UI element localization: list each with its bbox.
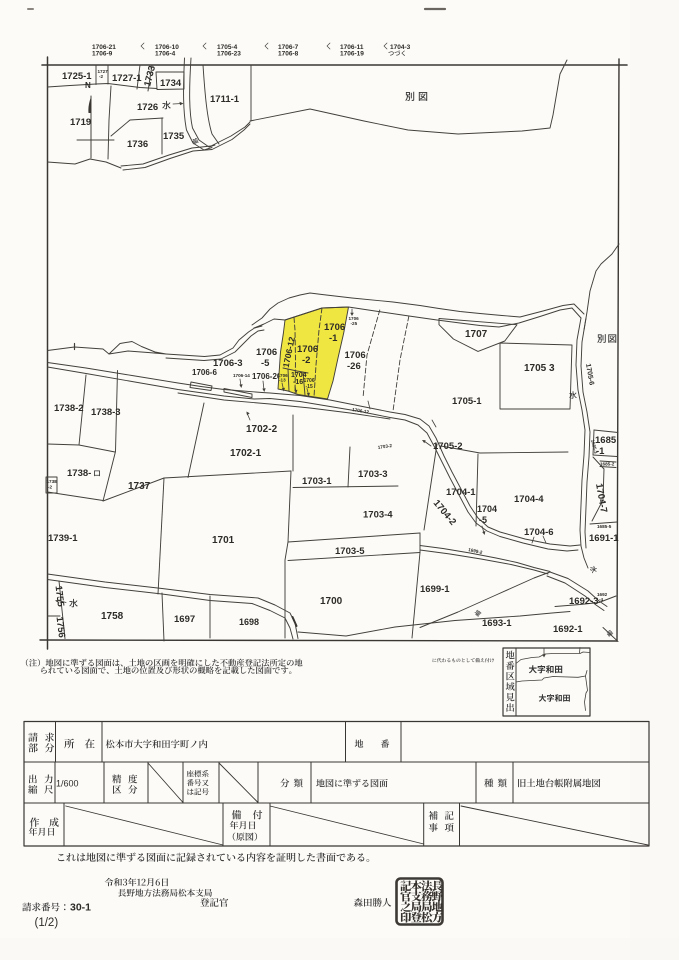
svg-text:1706-6: 1706-6 [192, 368, 217, 377]
svg-text:1726: 1726 [137, 102, 158, 113]
svg-text:1685-2: 1685-2 [600, 462, 615, 467]
svg-text:-5: -5 [261, 358, 270, 369]
svg-text:1703-4: 1703-4 [363, 510, 393, 521]
svg-text:-5: -5 [479, 515, 487, 525]
svg-text:1735: 1735 [163, 131, 185, 142]
svg-text:1704: 1704 [477, 504, 497, 514]
svg-text:-2: -2 [48, 485, 53, 490]
svg-text:1704-6: 1704-6 [524, 527, 554, 538]
svg-text:1693-1: 1693-1 [482, 618, 512, 629]
svg-text:1704-1: 1704-1 [446, 487, 476, 498]
svg-text:1700: 1700 [320, 596, 343, 607]
svg-text:1706: 1706 [324, 322, 345, 333]
svg-text:1706-19: 1706-19 [340, 51, 364, 58]
svg-text:1697: 1697 [174, 614, 195, 625]
svg-text:1703-1: 1703-1 [302, 476, 332, 487]
svg-text:1707: 1707 [465, 329, 488, 340]
svg-text:1706: 1706 [256, 347, 277, 358]
svg-text:1705 3: 1705 3 [524, 363, 555, 374]
svg-text:1701: 1701 [212, 535, 235, 546]
svg-text:1711-1: 1711-1 [210, 94, 240, 105]
svg-text:1758: 1758 [101, 611, 124, 622]
svg-text:1706-9: 1706-9 [92, 51, 113, 58]
svg-text:1706: 1706 [345, 350, 366, 361]
svg-text:-1: -1 [329, 333, 338, 344]
svg-text:1691-1: 1691-1 [589, 533, 619, 544]
svg-text:1737: 1737 [128, 481, 151, 492]
svg-text:1692-3: 1692-3 [569, 596, 599, 607]
svg-text:1703-3: 1703-3 [358, 469, 388, 480]
svg-text:-16: -16 [293, 379, 303, 386]
svg-text:1706-8: 1706-8 [278, 51, 299, 58]
svg-text:-2: -2 [302, 355, 310, 366]
svg-text:1719: 1719 [70, 117, 91, 128]
svg-text:-13: -13 [279, 378, 286, 383]
svg-text:1705-2: 1705-2 [433, 441, 463, 452]
svg-text:1685-5: 1685-5 [597, 524, 612, 529]
svg-text:1705-1: 1705-1 [452, 396, 482, 407]
svg-text:-2: -2 [99, 74, 104, 79]
svg-text:1706-14: 1706-14 [233, 373, 250, 378]
svg-text:1704-3: 1704-3 [390, 44, 411, 51]
svg-text:30-1: 30-1 [70, 902, 91, 914]
svg-text:1734: 1734 [160, 78, 182, 89]
svg-text:1738-: 1738- [67, 468, 91, 479]
svg-text:1699-1: 1699-1 [420, 584, 450, 595]
svg-text:(1/2): (1/2) [35, 917, 59, 929]
svg-text:-25: -25 [351, 321, 358, 326]
svg-text:1736: 1736 [127, 139, 148, 150]
svg-text:-4: -4 [599, 597, 604, 602]
svg-text:1738-2: 1738-2 [54, 403, 84, 414]
svg-text:1738: 1738 [47, 479, 58, 484]
svg-text:1698: 1698 [239, 617, 259, 627]
svg-text:1706: 1706 [297, 344, 318, 355]
svg-text:1706-23: 1706-23 [217, 51, 241, 58]
svg-text:-15: -15 [306, 384, 313, 390]
svg-text:1706-4: 1706-4 [155, 51, 176, 58]
svg-text:1/600: 1/600 [56, 779, 79, 789]
svg-text:1703-5: 1703-5 [335, 546, 365, 557]
svg-text:1727-1: 1727-1 [112, 73, 142, 84]
svg-text:1706-3: 1706-3 [213, 358, 243, 369]
svg-text:1738-3: 1738-3 [91, 407, 121, 418]
svg-text:1685: 1685 [595, 435, 617, 446]
svg-text:1692-1: 1692-1 [553, 624, 583, 635]
svg-text:1739-1: 1739-1 [48, 533, 78, 544]
svg-text:-26: -26 [347, 361, 361, 372]
svg-text:1704-4: 1704-4 [514, 494, 544, 505]
svg-text:1702-2: 1702-2 [246, 424, 278, 435]
svg-text:1702-1: 1702-1 [230, 448, 262, 459]
svg-text:N: N [85, 81, 91, 90]
